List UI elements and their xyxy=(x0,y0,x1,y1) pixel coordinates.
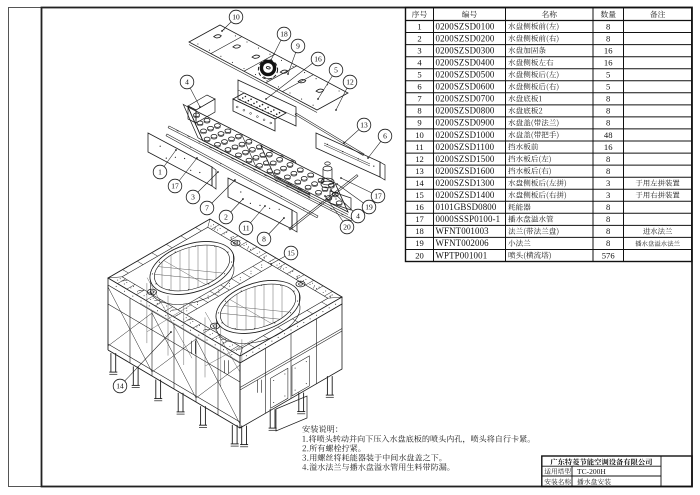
svg-text:8: 8 xyxy=(606,238,610,248)
svg-text:10: 10 xyxy=(415,130,424,140)
svg-text:10: 10 xyxy=(232,13,240,22)
svg-text:0200SZSD1500: 0200SZSD1500 xyxy=(436,154,495,164)
svg-text:17: 17 xyxy=(415,214,424,224)
svg-text:8: 8 xyxy=(417,106,421,116)
svg-text:8: 8 xyxy=(606,94,610,104)
svg-text:9: 9 xyxy=(417,118,421,128)
svg-text:8: 8 xyxy=(606,166,610,176)
svg-text:13: 13 xyxy=(360,121,368,130)
svg-text:6: 6 xyxy=(383,132,387,141)
svg-text:14: 14 xyxy=(415,178,424,188)
svg-text:0200SZSD1300: 0200SZSD1300 xyxy=(436,178,495,188)
svg-text:48: 48 xyxy=(604,130,613,140)
svg-text:16: 16 xyxy=(314,55,322,64)
svg-text:0200SZSD0400: 0200SZSD0400 xyxy=(436,58,495,68)
svg-text:20: 20 xyxy=(343,223,351,232)
svg-text:8: 8 xyxy=(606,202,610,212)
svg-text:18: 18 xyxy=(280,30,288,39)
svg-text:19: 19 xyxy=(415,238,424,248)
svg-text:7: 7 xyxy=(205,204,209,213)
svg-text:15: 15 xyxy=(415,190,424,200)
svg-text:8: 8 xyxy=(606,118,610,128)
svg-text:13: 13 xyxy=(415,166,424,176)
svg-text:4: 4 xyxy=(356,212,360,221)
svg-text:0200SZSD0300: 0200SZSD0300 xyxy=(436,45,495,55)
svg-text:0200SZSD1100: 0200SZSD1100 xyxy=(436,142,495,152)
svg-text:8: 8 xyxy=(606,106,610,116)
svg-text:14: 14 xyxy=(116,382,124,391)
svg-text:0000SSSP0100-1: 0000SSSP0100-1 xyxy=(436,214,501,224)
svg-text:0200SZSD0600: 0200SZSD0600 xyxy=(436,82,495,92)
svg-text:0200SZSD1400: 0200SZSD1400 xyxy=(436,190,495,200)
svg-text:16: 16 xyxy=(415,202,424,212)
svg-text:12: 12 xyxy=(346,78,354,87)
svg-text:5: 5 xyxy=(606,82,610,92)
svg-text:WFNT001003: WFNT001003 xyxy=(436,226,490,236)
svg-text:0200SZSD1000: 0200SZSD1000 xyxy=(436,130,495,140)
svg-text:1: 1 xyxy=(417,21,421,31)
svg-text:2: 2 xyxy=(224,213,228,222)
svg-text:7: 7 xyxy=(417,94,422,104)
svg-text:19: 19 xyxy=(365,203,373,212)
svg-text:1: 1 xyxy=(158,168,162,177)
svg-text:20: 20 xyxy=(415,250,424,260)
svg-text:3: 3 xyxy=(606,178,610,188)
svg-text:8: 8 xyxy=(606,21,610,31)
svg-text:0101GBSD0800: 0101GBSD0800 xyxy=(436,202,497,212)
svg-text:WPTP001001: WPTP001001 xyxy=(436,250,488,260)
svg-text:8: 8 xyxy=(606,33,610,43)
svg-text:3: 3 xyxy=(417,45,421,55)
svg-text:5: 5 xyxy=(606,70,610,80)
svg-text:5: 5 xyxy=(334,66,338,75)
svg-text:5: 5 xyxy=(417,70,421,80)
svg-text:4: 4 xyxy=(185,78,189,87)
svg-text:8: 8 xyxy=(262,235,266,244)
svg-text:16: 16 xyxy=(604,58,613,68)
svg-text:15: 15 xyxy=(287,249,295,258)
svg-text:17: 17 xyxy=(171,182,179,191)
svg-text:8: 8 xyxy=(606,226,610,236)
svg-text:9: 9 xyxy=(296,42,300,51)
svg-text:0200SZSD0700: 0200SZSD0700 xyxy=(436,94,495,104)
svg-text:0200SZSD0800: 0200SZSD0800 xyxy=(436,106,495,116)
svg-text:WFNT002006: WFNT002006 xyxy=(436,238,490,248)
svg-text:17: 17 xyxy=(374,192,382,201)
svg-text:0200SZSD0100: 0200SZSD0100 xyxy=(436,21,495,31)
svg-text:16: 16 xyxy=(604,142,613,152)
svg-text:0200SZSD0200: 0200SZSD0200 xyxy=(436,33,495,43)
svg-text:4: 4 xyxy=(417,58,422,68)
svg-text:2: 2 xyxy=(417,33,421,43)
svg-text:11: 11 xyxy=(242,224,249,233)
svg-text:3: 3 xyxy=(606,190,610,200)
svg-text:TC-200H: TC-200H xyxy=(577,467,606,476)
svg-text:3: 3 xyxy=(191,193,195,202)
svg-text:576: 576 xyxy=(602,250,616,260)
svg-text:6: 6 xyxy=(417,82,422,92)
svg-text:0200SZSD0900: 0200SZSD0900 xyxy=(436,118,495,128)
svg-text:11: 11 xyxy=(415,142,423,152)
svg-text:8: 8 xyxy=(606,214,610,224)
svg-text:18: 18 xyxy=(415,226,424,236)
svg-text:12: 12 xyxy=(415,154,424,164)
svg-text:8: 8 xyxy=(606,154,610,164)
svg-text:0200SZSD1600: 0200SZSD1600 xyxy=(436,166,495,176)
svg-text:0200SZSD0500: 0200SZSD0500 xyxy=(436,70,495,80)
svg-text:16: 16 xyxy=(604,45,613,55)
